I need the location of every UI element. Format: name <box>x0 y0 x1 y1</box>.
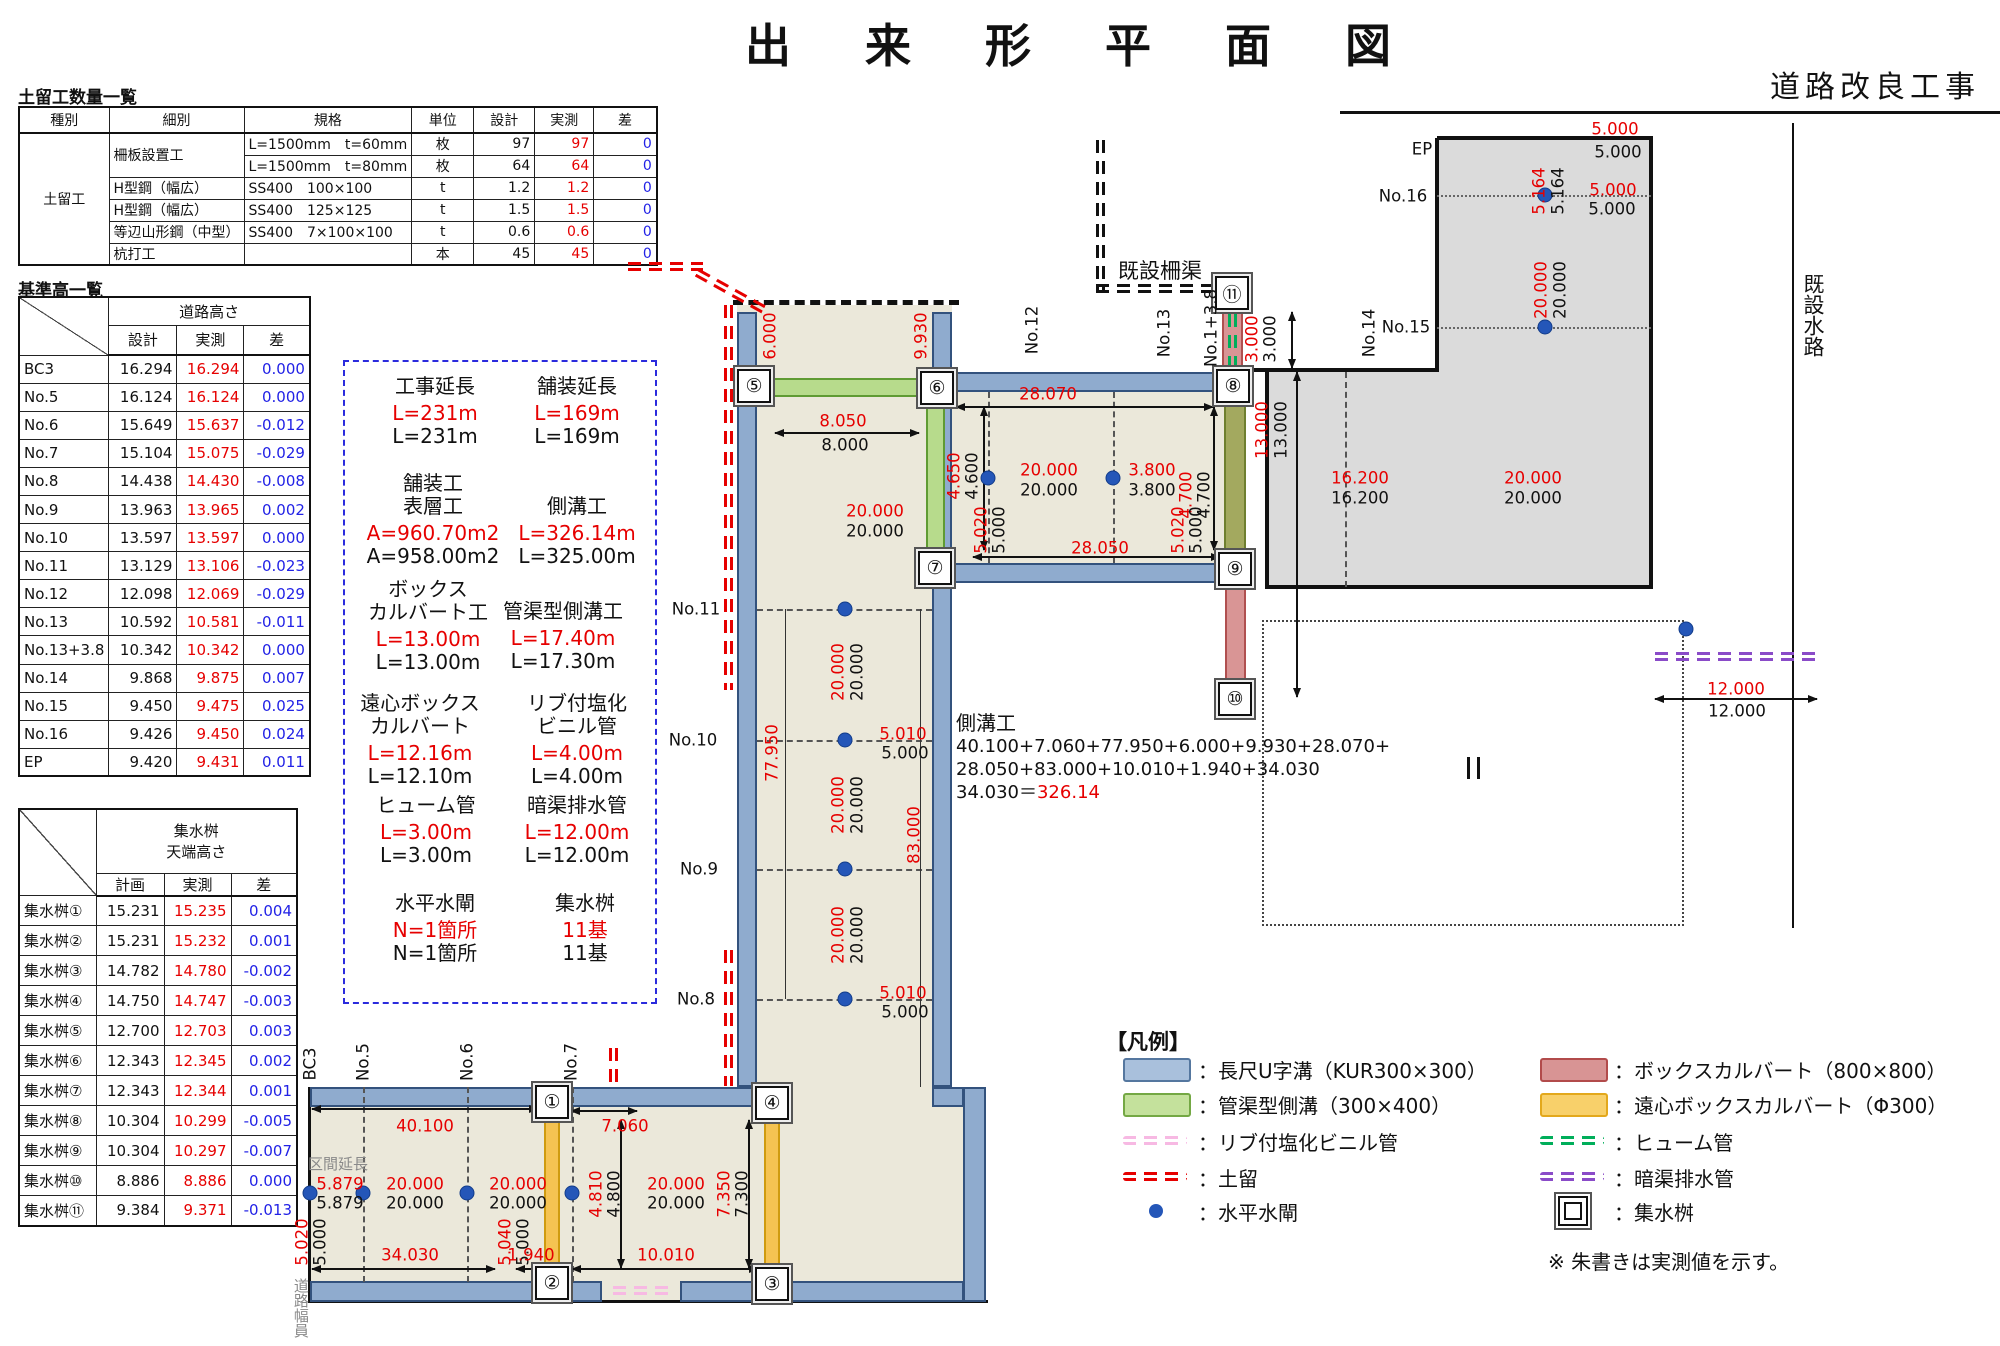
actual-value: 15.232 <box>164 926 231 956</box>
summary-item: リブ付塩化ビニル管L=4.00mL=4.00m <box>467 692 687 788</box>
dim-label: 既設柵渠 <box>1118 260 1202 282</box>
table-row: No.1113.12913.106-0.023 <box>19 552 310 580</box>
col-header: 種別 <box>19 107 109 133</box>
u-channel-vertical-left <box>737 312 757 1087</box>
dim-label: 20.000 <box>829 776 846 834</box>
summary-item-title: 集水桝 <box>475 892 695 915</box>
summary-item-title: 舗装工 <box>323 472 543 495</box>
catch-basin-node: ④ <box>755 1086 789 1120</box>
gutter-calc-result: 326.14 <box>1037 782 1100 803</box>
dim-label: 20.000 <box>1532 261 1549 319</box>
dim-label: 5.000 <box>1589 181 1636 198</box>
dim-label: 5.000 <box>1591 120 1638 137</box>
design-value: 10.342 <box>109 636 177 664</box>
table-row: 集水桝⑤12.70012.7030.003 <box>19 1016 297 1046</box>
culvert-mark-left <box>1467 757 1470 779</box>
legend-label: ：暗渠排水管 <box>1614 1163 1734 1192</box>
design-value: 15.231 <box>96 896 164 926</box>
dim-label: 5.164 <box>1549 167 1566 214</box>
summary-item: 舗装延長L=169mL=169m <box>467 375 687 448</box>
summary-item: 暗渠排水管L=12.00mL=12.00m <box>467 794 687 867</box>
gutter-calc-line1: 40.100+7.060+77.950+6.000+9.930+28.070+ <box>956 735 1390 758</box>
actual-value: 14.780 <box>164 956 231 986</box>
actual-value: 12.344 <box>164 1076 231 1106</box>
station-line-no6 <box>467 1087 469 1282</box>
water-gate-dot <box>838 733 853 748</box>
basin-height-table: 集水桝天端高さ計画実測差集水桝①15.23115.2350.004集水桝②15.… <box>18 808 298 1227</box>
dim-label: No.5 <box>354 1043 371 1081</box>
catch-basin-icon <box>1558 1196 1588 1226</box>
dim-label: 20.000 <box>489 1194 547 1211</box>
unit: 枚 <box>412 155 474 177</box>
box-culvert-9-10 <box>1225 587 1246 682</box>
legend-swatch <box>1540 1093 1608 1117</box>
table-row: H型鋼（幅広）SS400 100×100t1.21.20 <box>19 177 657 199</box>
actual-value: 10.581 <box>177 608 244 636</box>
dim-label: 20.000 <box>1504 469 1562 486</box>
station-name: No.15 <box>19 692 109 720</box>
u-channel-middle-bottom <box>948 563 1223 583</box>
dim-label: 20.000 <box>386 1175 444 1192</box>
actual-value: 15.637 <box>177 411 244 439</box>
diff-value: -0.011 <box>244 608 310 636</box>
design-value: 10.304 <box>96 1136 164 1166</box>
dim-label: No.11 <box>672 600 720 617</box>
centrifugal-culvert-4-3 <box>764 1119 780 1269</box>
catch-basin-node: ⑦ <box>918 551 952 585</box>
summary-design: 11基 <box>475 942 695 965</box>
water-gate-dot <box>1679 622 1694 637</box>
work-item: 柵板設置工 <box>109 133 244 177</box>
dim-label: 20.000 <box>1020 481 1078 498</box>
diff-value: 0.011 <box>244 748 310 776</box>
dim-label: 5.000 <box>990 506 1007 553</box>
dim-label: 20.000 <box>848 906 865 964</box>
table-row: No.1013.59713.5970.000 <box>19 524 310 552</box>
design-value: 16.124 <box>109 383 177 411</box>
actual-value: 10.342 <box>177 636 244 664</box>
diff-value: 0.001 <box>231 926 297 956</box>
actual-value: 16.124 <box>177 383 244 411</box>
spec: SS400 7×100×100 <box>244 221 412 243</box>
dim-label: 4.600 <box>963 452 980 499</box>
actual-value: 14.430 <box>177 467 244 495</box>
actual-value: 64 <box>535 155 594 177</box>
dim-label: 7.300 <box>733 1170 750 1217</box>
diff-value: -0.003 <box>231 986 297 1016</box>
station-name: No.11 <box>19 552 109 580</box>
diff-value: 0.024 <box>244 720 310 748</box>
design-value: 45 <box>474 243 535 265</box>
summary-item: 側溝工L=326.14mL=325.00m <box>467 495 687 568</box>
actual-value: 9.431 <box>177 748 244 776</box>
gutter-calc-line2: 28.050+83.000+10.010+1.940+34.030 <box>956 758 1390 781</box>
dim-28070 <box>956 406 1213 408</box>
underdrain-pipe-line <box>1655 652 1817 661</box>
dim-10010 <box>572 1268 758 1270</box>
diff-value: 0.001 <box>231 1076 297 1106</box>
legend-label: ：遠心ボックスカルバート（Φ300） <box>1614 1090 1947 1119</box>
table-row: No.159.4509.4750.025 <box>19 692 310 720</box>
catch-basin-node: ③ <box>755 1267 789 1301</box>
actual-value: 13.597 <box>177 524 244 552</box>
dim-label: 5.000 <box>881 1003 928 1020</box>
design-value: 97 <box>474 133 535 155</box>
u-channel-bottom-top2 <box>567 1087 757 1107</box>
catch-basin-node: ⑩ <box>1218 682 1252 716</box>
dim-label: No.6 <box>458 1043 475 1081</box>
dim-label: 3.800 <box>1128 481 1175 498</box>
diff-value: 0.007 <box>244 664 310 692</box>
earthwork-table-title: 土留工数量一覧 <box>18 83 137 108</box>
station-name: 集水桝③ <box>19 956 96 986</box>
dim-34030 <box>312 1268 495 1270</box>
u-channel-bottom-top3 <box>932 1087 964 1107</box>
work-item: H型鋼（幅広） <box>109 177 244 199</box>
summary-item-title: 側溝工 <box>467 495 687 518</box>
legend-label: ：ヒューム管 <box>1614 1127 1733 1156</box>
station-name: No.14 <box>19 664 109 692</box>
dim-label: 5.879 <box>316 1175 363 1192</box>
station-name: 集水桝④ <box>19 986 96 1016</box>
actual-value: 9.371 <box>164 1196 231 1226</box>
diff-value: 0.002 <box>231 1046 297 1076</box>
dim-label: 道路幅員 <box>292 1278 308 1338</box>
drawing-sheet: 出 来 形 平 面 図 道路改良工事 土留工数量一覧 種別細別規格単位設計実測差… <box>0 0 2000 1346</box>
spec: SS400 125×125 <box>244 199 412 221</box>
dim-label: 5.000 <box>881 744 928 761</box>
legend-label: ：集水桝 <box>1614 1197 1694 1226</box>
legend-dash-line <box>1123 1136 1187 1145</box>
design-value: 8.886 <box>96 1166 164 1196</box>
water-gate-dot <box>460 1186 475 1201</box>
table-row: No.715.10415.075-0.029 <box>19 439 310 467</box>
col-header: 差 <box>244 325 310 355</box>
summary-actual: 11基 <box>475 919 695 942</box>
u-channel-bottom-right <box>963 1087 986 1302</box>
diff-value: 0.025 <box>244 692 310 720</box>
dim-label: 5.010 <box>879 725 926 742</box>
dim-label: 40.100 <box>396 1117 454 1134</box>
dim-label: 5.020 <box>293 1218 310 1265</box>
diff-value: 0.003 <box>231 1016 297 1046</box>
summary-actual: L=169m <box>467 402 687 425</box>
col-header: 実測 <box>164 873 231 896</box>
gutter-calc-title: 側溝工 <box>956 712 1390 735</box>
dim-3000 <box>1291 312 1293 368</box>
design-value: 64 <box>474 155 535 177</box>
design-value: 14.438 <box>109 467 177 495</box>
boundary-gray-left <box>1435 138 1439 372</box>
table-row: No.169.4269.4500.024 <box>19 720 310 748</box>
table-row: 集水桝⑧10.30410.299-0.005 <box>19 1106 297 1136</box>
design-value: 10.304 <box>96 1106 164 1136</box>
earth-retaining-line-4 <box>628 262 703 271</box>
catch-basin-node: ⑨ <box>1218 552 1252 586</box>
dim-label: 83.000 <box>905 806 922 864</box>
col-header: 規格 <box>244 107 412 133</box>
dim-label: 5.000 <box>1588 200 1635 217</box>
legend-label: ：土留 <box>1198 1163 1258 1192</box>
dim-label: 20.000 <box>848 776 865 834</box>
dim-label: 1.940 <box>507 1246 554 1263</box>
actual-value: 0.6 <box>535 221 594 243</box>
dim-label: 8.000 <box>821 436 868 453</box>
spec: L=1500mm t=80mm <box>244 155 412 177</box>
actual-value: 15.075 <box>177 439 244 467</box>
col-header: 実測 <box>177 325 244 355</box>
unit: t <box>412 221 474 243</box>
summary-item: 管渠型側溝工L=17.40mL=17.30m <box>453 600 673 673</box>
station-name: 集水桝⑧ <box>19 1106 96 1136</box>
station-name: No.16 <box>19 720 109 748</box>
col-header: 差 <box>231 873 297 896</box>
legend-label: ：リブ付塩化ビニル管 <box>1198 1127 1398 1156</box>
table-row: 集水桝③14.78214.780-0.002 <box>19 956 297 986</box>
table-row: 集水桝⑪9.3849.371-0.013 <box>19 1196 297 1226</box>
table-row: H型鋼（幅広）SS400 125×125t1.51.50 <box>19 199 657 221</box>
col-header: 細別 <box>109 107 244 133</box>
boundary-gray-bottom <box>1267 585 1653 589</box>
design-value: 12.343 <box>96 1046 164 1076</box>
work-item: 杭打工 <box>109 243 244 265</box>
actual-value: 16.294 <box>177 355 244 383</box>
dim-7060 <box>571 1110 637 1112</box>
actual-value: 10.299 <box>164 1106 231 1136</box>
dim-label: 3.800 <box>1128 461 1175 478</box>
actual-value: 97 <box>535 133 594 155</box>
design-value: 9.868 <box>109 664 177 692</box>
table-row: 土留工柵板設置工L=1500mm t=60mm枚97970 <box>19 133 657 155</box>
station-name: No.13+3.8 <box>19 636 109 664</box>
summary-actual: L=326.14m <box>467 522 687 545</box>
catch-basin-node: ⑥ <box>920 371 954 405</box>
table-row: EP9.4209.4310.011 <box>19 748 310 776</box>
col-header: 実測 <box>535 107 594 133</box>
actual-value: 1.2 <box>535 177 594 199</box>
culvert-mark-right <box>1477 757 1480 779</box>
dim-label: No.10 <box>669 731 717 748</box>
culvert-channel-8-9 <box>1224 403 1246 553</box>
work-item: H型鋼（幅広） <box>109 199 244 221</box>
road-height-table: 道路高さ設計実測差BC316.29416.2940.000No.516.1241… <box>18 296 311 777</box>
table-row: 集水桝⑩8.8868.8860.000 <box>19 1166 297 1196</box>
dim-label: 4.810 <box>587 1170 604 1217</box>
diff-value: -0.029 <box>244 439 310 467</box>
dim-label: 5.164 <box>1530 167 1547 214</box>
dim-label: 20.000 <box>848 643 865 701</box>
dim-label: 12.000 <box>1707 680 1765 697</box>
earth-retaining-line-3 <box>609 1048 618 1088</box>
dim-label: 8.050 <box>819 412 866 429</box>
earth-retaining-line-2 <box>724 950 733 1086</box>
actual-value: 14.747 <box>164 986 231 1016</box>
hume-pipe-line <box>1228 314 1237 366</box>
diagonal-cell <box>19 297 109 355</box>
dim-label: 既設水路 <box>1802 273 1824 357</box>
dim-label: 13.000 <box>1253 401 1270 459</box>
summary-item-title: 管渠型側溝工 <box>453 600 673 623</box>
dim-label: 4.800 <box>605 1170 622 1217</box>
station-name: 集水桝② <box>19 926 96 956</box>
table-row: No.615.64915.637-0.012 <box>19 411 310 439</box>
dim-label: 34.030 <box>381 1246 439 1263</box>
station-name: No.13 <box>19 608 109 636</box>
table-row: No.814.43814.430-0.008 <box>19 467 310 495</box>
dim-label: 28.070 <box>1019 385 1077 402</box>
spec: SS400 100×100 <box>244 177 412 199</box>
station-name: No.6 <box>19 411 109 439</box>
design-value: 1.2 <box>474 177 535 199</box>
unit: 枚 <box>412 133 474 155</box>
design-value: 16.294 <box>109 355 177 383</box>
gutter-calc-line3: 34.030＝326.14 <box>956 781 1390 804</box>
diff-value: -0.012 <box>244 411 310 439</box>
design-value: 10.592 <box>109 608 177 636</box>
dim-label: 10.010 <box>637 1246 695 1263</box>
dim-40100 <box>312 1108 538 1110</box>
station-name: BC3 <box>19 355 109 383</box>
earthwork-quantity-table: 種別細別規格単位設計実測差土留工柵板設置工L=1500mm t=60mm枚979… <box>18 106 658 266</box>
earth-retaining-line-1 <box>724 305 733 690</box>
diff-value: -0.013 <box>231 1196 297 1226</box>
actual-value: 13.106 <box>177 552 244 580</box>
diff-value: 0.000 <box>244 636 310 664</box>
u-channel-middle-top <box>953 372 1215 392</box>
catch-basin-node: ① <box>535 1085 569 1119</box>
catch-basin-node: ⑤ <box>737 369 771 403</box>
station-name: No.10 <box>19 524 109 552</box>
design-value: 12.343 <box>96 1076 164 1106</box>
diff-value: -0.002 <box>231 956 297 986</box>
summary-actual: L=17.40m <box>453 627 673 650</box>
dim-label: 20.000 <box>829 906 846 964</box>
dim-8050 <box>775 432 919 434</box>
table-row: 等辺山形鋼（中型）SS400 7×100×100t0.60.60 <box>19 221 657 243</box>
station-name: No.5 <box>19 383 109 411</box>
dim-label: 20.000 <box>846 502 904 519</box>
water-gate-dot <box>838 862 853 877</box>
station-name: 集水桝⑩ <box>19 1166 96 1196</box>
actual-value: 9.875 <box>177 664 244 692</box>
actual-value: 8.886 <box>164 1166 231 1196</box>
design-value: 9.384 <box>96 1196 164 1226</box>
road-top-dashed-boundary <box>733 300 959 305</box>
summary-actual: L=12.00m <box>467 821 687 844</box>
water-gate-dot <box>981 471 996 486</box>
diff-value: 0.000 <box>244 524 310 552</box>
summary-actual: L=4.00m <box>467 742 687 765</box>
legend-swatch <box>1540 1058 1608 1082</box>
group-label: 土留工 <box>19 133 109 265</box>
station-name: No.9 <box>19 495 109 523</box>
dim-label: 20.000 <box>1020 461 1078 478</box>
legend-title: 【凡例】 <box>1106 1026 1190 1056</box>
diff-value: 0 <box>594 177 657 199</box>
project-title: 道路改良工事 <box>1770 62 1980 106</box>
station-name: 集水桝⑤ <box>19 1016 96 1046</box>
table-row: 集水桝②15.23115.2320.001 <box>19 926 297 956</box>
diff-value: 0.000 <box>231 1166 297 1196</box>
col-header: 設計 <box>109 325 177 355</box>
catch-basin-node: ② <box>535 1266 569 1300</box>
legend-note: ※ 朱書きは実測値を示す。 <box>1548 1246 1789 1275</box>
pipe-channel-6-7 <box>926 403 945 552</box>
station-name: 集水桝⑥ <box>19 1046 96 1076</box>
dim-label: 3.000 <box>1243 315 1260 362</box>
spec <box>244 243 412 265</box>
section-header: 集水桝天端高さ <box>96 809 297 873</box>
actual-value: 12.345 <box>164 1046 231 1076</box>
actual-value: 12.069 <box>177 580 244 608</box>
diff-value: -0.023 <box>244 552 310 580</box>
station-name: 集水桝⑨ <box>19 1136 96 1166</box>
actual-value: 12.703 <box>164 1016 231 1046</box>
table-row: 集水桝⑥12.34312.3450.002 <box>19 1046 297 1076</box>
pipe-channel-5-6 <box>772 378 924 397</box>
diff-value: -0.005 <box>231 1106 297 1136</box>
actual-value: 45 <box>535 243 594 265</box>
dim-label: 5.020 <box>1169 506 1186 553</box>
col-header: 差 <box>594 107 657 133</box>
dim-label: 7.350 <box>715 1170 732 1217</box>
water-gate-dot <box>565 1186 580 1201</box>
design-value: 13.129 <box>109 552 177 580</box>
legend-swatch <box>1123 1058 1191 1082</box>
summary-item-title: リブ付塩化 <box>467 692 687 715</box>
dim-label: 3.000 <box>1261 315 1278 362</box>
diff-value: 0 <box>594 221 657 243</box>
dim-label: 20.000 <box>1504 489 1562 506</box>
station-name: No.12 <box>19 580 109 608</box>
diff-value: -0.008 <box>244 467 310 495</box>
summary-design: L=325.00m <box>467 545 687 568</box>
diff-value: 0.004 <box>231 896 297 926</box>
summary-design: L=17.30m <box>453 650 673 673</box>
unit: 本 <box>412 243 474 265</box>
dim-label: 28.050 <box>1071 539 1129 556</box>
dim-label: 20.000 <box>489 1175 547 1192</box>
dim-label: 20.000 <box>846 522 904 539</box>
table-row: No.516.12416.1240.000 <box>19 383 310 411</box>
legend-label: ：水平水閘 <box>1198 1197 1298 1226</box>
table-row: 杭打工本45450 <box>19 243 657 265</box>
dim-label: 20.000 <box>647 1175 705 1192</box>
diff-value: 0 <box>594 133 657 155</box>
work-item: 等辺山形鋼（中型） <box>109 221 244 243</box>
dim-label: 5.000 <box>1594 143 1641 160</box>
diff-value: -0.007 <box>231 1136 297 1166</box>
col-header: 設計 <box>474 107 535 133</box>
table-row: No.1212.09812.069-0.029 <box>19 580 310 608</box>
dim-label: No.8 <box>677 990 715 1007</box>
table-row: No.913.96313.9650.002 <box>19 495 310 523</box>
station-name: 集水桝⑦ <box>19 1076 96 1106</box>
pvc-pipe-line <box>613 1286 668 1295</box>
dim-label: 20.000 <box>829 643 846 701</box>
u-channel-bottom-bot2 <box>680 1281 964 1302</box>
table-row: 集水桝①15.23115.2350.004 <box>19 896 297 926</box>
actual-value: 9.450 <box>177 720 244 748</box>
diff-value: 0.000 <box>244 383 310 411</box>
design-value: 14.750 <box>96 986 164 1016</box>
dim-label: 9.930 <box>912 312 929 359</box>
section-header: 道路高さ <box>109 297 310 325</box>
legend-dash-line <box>1540 1172 1604 1181</box>
summary-design: L=4.00m <box>467 765 687 788</box>
table-row: No.13+3.810.34210.3420.000 <box>19 636 310 664</box>
legend-dash-line <box>1123 1172 1187 1181</box>
